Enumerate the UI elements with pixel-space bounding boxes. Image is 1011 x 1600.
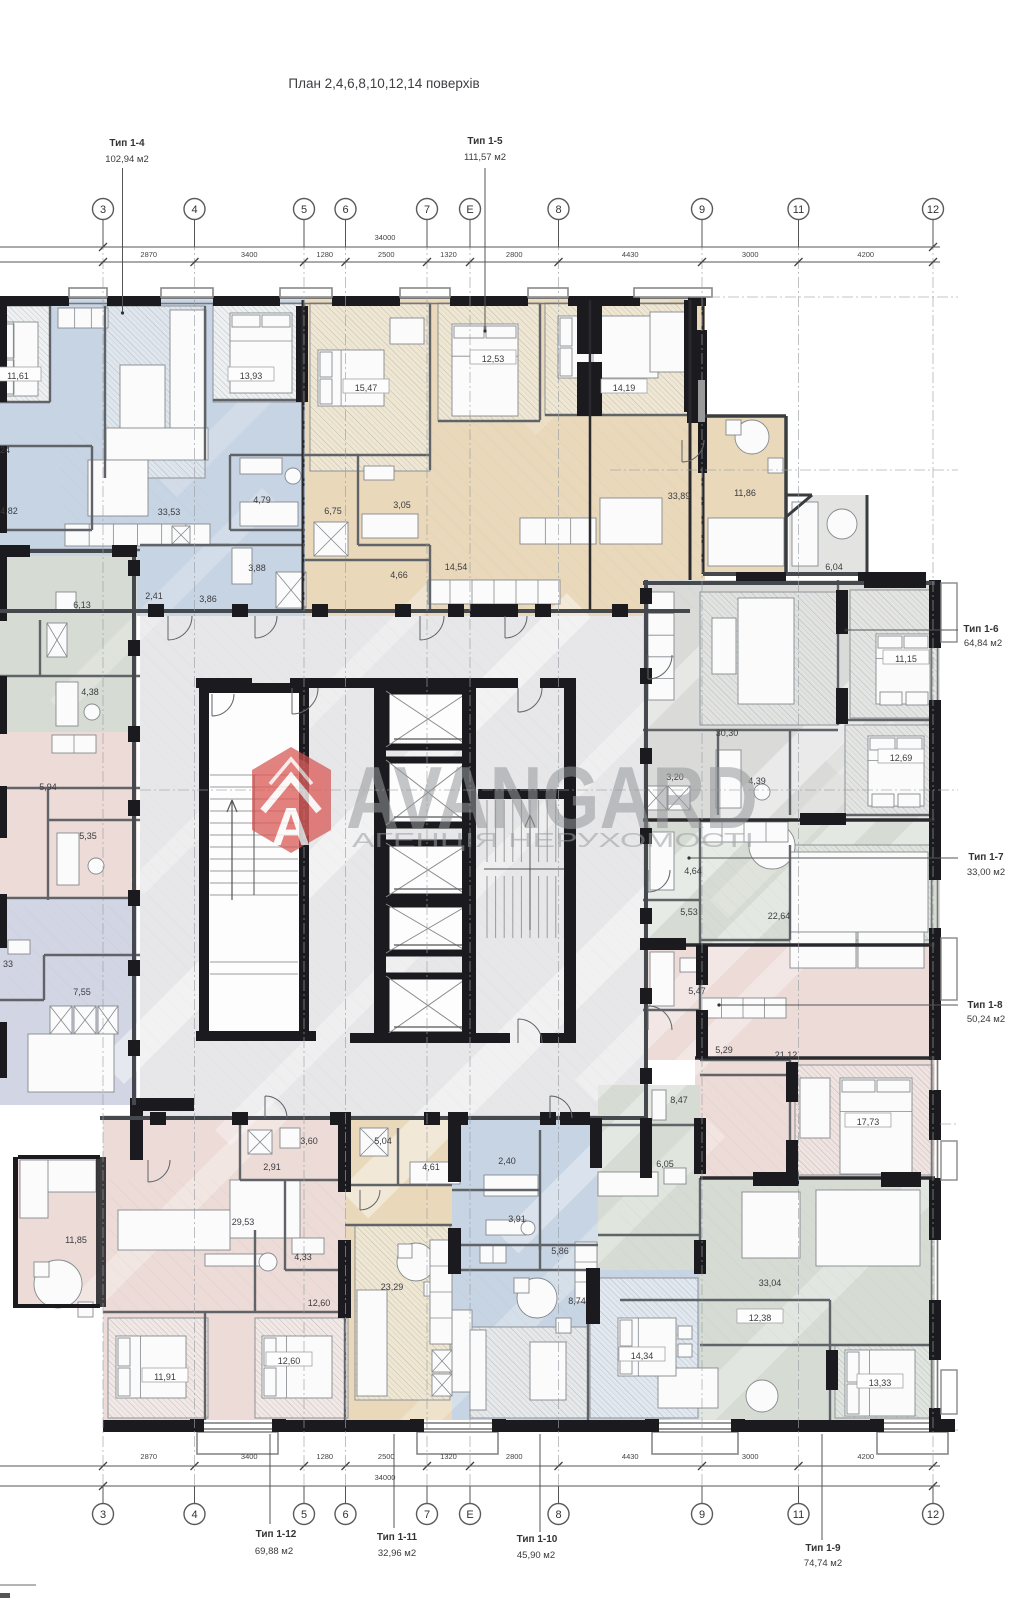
svg-text:102,94 м2: 102,94 м2 <box>105 154 149 165</box>
svg-text:33,53: 33,53 <box>158 507 181 517</box>
svg-text:4,38: 4,38 <box>81 687 99 697</box>
svg-text:6,13: 6,13 <box>73 600 91 610</box>
svg-text:29,53: 29,53 <box>232 1217 255 1227</box>
svg-text:2500: 2500 <box>378 1452 395 1461</box>
svg-text:Тип 1-4: Тип 1-4 <box>109 138 145 149</box>
svg-text:6,04: 6,04 <box>825 562 843 572</box>
svg-text:АГЕНЦІЯ НЕРУХОМОСТІ: АГЕНЦІЯ НЕРУХОМОСТІ <box>352 830 754 852</box>
svg-text:12,60: 12,60 <box>278 1356 301 1366</box>
svg-text:23,29: 23,29 <box>381 1282 404 1292</box>
svg-text:4,61: 4,61 <box>422 1162 440 1172</box>
svg-text:3400: 3400 <box>241 250 258 259</box>
svg-text:4: 4 <box>191 204 197 216</box>
svg-text:50,24 м2: 50,24 м2 <box>967 1014 1005 1025</box>
svg-text:3400: 3400 <box>241 1452 258 1461</box>
svg-text:6: 6 <box>342 1509 348 1521</box>
svg-text:33,89: 33,89 <box>668 491 691 501</box>
svg-text:14,34: 14,34 <box>631 1351 654 1361</box>
svg-text:45,90 м2: 45,90 м2 <box>517 1550 555 1561</box>
svg-text:7: 7 <box>424 1509 430 1521</box>
svg-text:2,91: 2,91 <box>263 1162 281 1172</box>
svg-text:2800: 2800 <box>506 250 523 259</box>
svg-text:Тип 1-10: Тип 1-10 <box>517 1534 558 1545</box>
svg-text:4,66: 4,66 <box>390 570 408 580</box>
svg-text:9: 9 <box>699 204 705 216</box>
svg-text:15,47: 15,47 <box>355 383 378 393</box>
svg-text:Тип 1-9: Тип 1-9 <box>805 1543 841 1554</box>
svg-text:5: 5 <box>301 204 307 216</box>
svg-text:4,79: 4,79 <box>253 495 271 505</box>
svg-text:1280: 1280 <box>316 1452 333 1461</box>
svg-text:2,40: 2,40 <box>498 1156 516 1166</box>
svg-text:17,73: 17,73 <box>857 1117 880 1127</box>
svg-text:12: 12 <box>927 204 939 216</box>
svg-text:11,61: 11,61 <box>7 371 29 381</box>
svg-text:Тип 1-12: Тип 1-12 <box>256 1529 297 1540</box>
svg-text:14,19: 14,19 <box>613 383 636 393</box>
svg-text:21,12: 21,12 <box>775 1050 798 1060</box>
svg-text:5,47: 5,47 <box>688 986 706 996</box>
svg-text:5,04: 5,04 <box>374 1136 392 1146</box>
svg-text:3,05: 3,05 <box>393 500 411 510</box>
svg-text:8,74: 8,74 <box>568 1296 586 1306</box>
svg-text:Тип 1-7: Тип 1-7 <box>968 852 1004 863</box>
svg-text:11,91: 11,91 <box>154 1372 176 1382</box>
svg-text:6,75: 6,75 <box>324 506 342 516</box>
svg-text:34000: 34000 <box>375 1473 396 1482</box>
svg-text:6,05: 6,05 <box>656 1159 674 1169</box>
svg-text:Тип 1-11: Тип 1-11 <box>377 1532 418 1543</box>
svg-text:2870: 2870 <box>140 250 157 259</box>
svg-text:7: 7 <box>424 204 430 216</box>
svg-text:12,53: 12,53 <box>482 354 505 364</box>
svg-text:7,55: 7,55 <box>73 987 91 997</box>
svg-text:30,30: 30,30 <box>716 728 739 738</box>
svg-text:План 2,4,6,8,10,12,14 поверхі: План 2,4,6,8,10,12,14 поверхів <box>288 76 479 91</box>
svg-text:4430: 4430 <box>622 250 639 259</box>
svg-text:4: 4 <box>191 1509 197 1521</box>
svg-text:6: 6 <box>342 204 348 216</box>
svg-text:3,60: 3,60 <box>300 1136 318 1146</box>
svg-text:5,86: 5,86 <box>551 1246 569 1256</box>
svg-text:8,47: 8,47 <box>670 1095 688 1105</box>
svg-text:3: 3 <box>100 204 106 216</box>
svg-text:11: 11 <box>793 1509 804 1521</box>
svg-text:5,94: 5,94 <box>39 782 57 792</box>
svg-text:22,64: 22,64 <box>768 911 791 921</box>
svg-text:34000: 34000 <box>375 233 396 242</box>
svg-text:E: E <box>466 204 473 216</box>
svg-text:2,41: 2,41 <box>145 591 163 601</box>
svg-text:11,86: 11,86 <box>734 488 756 498</box>
svg-text:12: 12 <box>927 1509 939 1521</box>
svg-text:4,33: 4,33 <box>294 1252 312 1262</box>
svg-text:3,88: 3,88 <box>248 563 266 573</box>
svg-text:5,29: 5,29 <box>715 1045 733 1055</box>
svg-text:33,00 м2: 33,00 м2 <box>967 867 1005 878</box>
svg-text:A: A <box>272 797 311 857</box>
svg-text:2870: 2870 <box>140 1452 157 1461</box>
svg-text:111,57 м2: 111,57 м2 <box>464 152 506 163</box>
svg-text:11: 11 <box>793 204 804 216</box>
svg-text:8: 8 <box>555 204 561 216</box>
svg-text:1280: 1280 <box>316 250 333 259</box>
svg-text:Тип 1-6: Тип 1-6 <box>963 624 999 635</box>
svg-text:5,53: 5,53 <box>680 907 698 917</box>
svg-text:Тип 1-8: Тип 1-8 <box>967 1000 1003 1011</box>
svg-text:12,60: 12,60 <box>308 1298 331 1308</box>
svg-text:13,33: 13,33 <box>869 1378 892 1388</box>
svg-text:33: 33 <box>3 959 13 969</box>
svg-text:3000: 3000 <box>742 250 759 259</box>
svg-text:2500: 2500 <box>378 250 395 259</box>
svg-text:64,84 м2: 64,84 м2 <box>964 638 1002 649</box>
svg-text:12,38: 12,38 <box>749 1313 772 1323</box>
svg-text:33,04: 33,04 <box>759 1278 782 1288</box>
svg-text:5: 5 <box>301 1509 307 1521</box>
svg-text:24: 24 <box>0 445 10 455</box>
svg-text:3,86: 3,86 <box>199 594 217 604</box>
svg-text:Тип 1-5: Тип 1-5 <box>467 136 503 147</box>
svg-text:11,85: 11,85 <box>65 1235 87 1245</box>
svg-text:32,96 м2: 32,96 м2 <box>378 1548 416 1559</box>
svg-text:69,88 м2: 69,88 м2 <box>255 1546 293 1557</box>
svg-text:14,54: 14,54 <box>445 562 468 572</box>
svg-text:3: 3 <box>100 1509 106 1521</box>
svg-text:11,15: 11,15 <box>895 654 917 664</box>
svg-text:3000: 3000 <box>742 1452 759 1461</box>
svg-text:1320: 1320 <box>440 250 457 259</box>
svg-text:8: 8 <box>555 1509 561 1521</box>
svg-text:2800: 2800 <box>506 1452 523 1461</box>
svg-text:9: 9 <box>699 1509 705 1521</box>
svg-text:3,91: 3,91 <box>508 1214 526 1224</box>
svg-text:74,74 м2: 74,74 м2 <box>804 1558 842 1569</box>
svg-text:5,35: 5,35 <box>79 831 97 841</box>
svg-text:4430: 4430 <box>622 1452 639 1461</box>
svg-text:1320: 1320 <box>440 1452 457 1461</box>
svg-text:E: E <box>466 1509 473 1521</box>
svg-text:12,69: 12,69 <box>890 753 913 763</box>
svg-text:4200: 4200 <box>857 250 874 259</box>
svg-text:4,64: 4,64 <box>684 866 702 876</box>
svg-text:13,93: 13,93 <box>240 371 263 381</box>
svg-text:4,82: 4,82 <box>0 506 18 516</box>
svg-text:4200: 4200 <box>857 1452 874 1461</box>
